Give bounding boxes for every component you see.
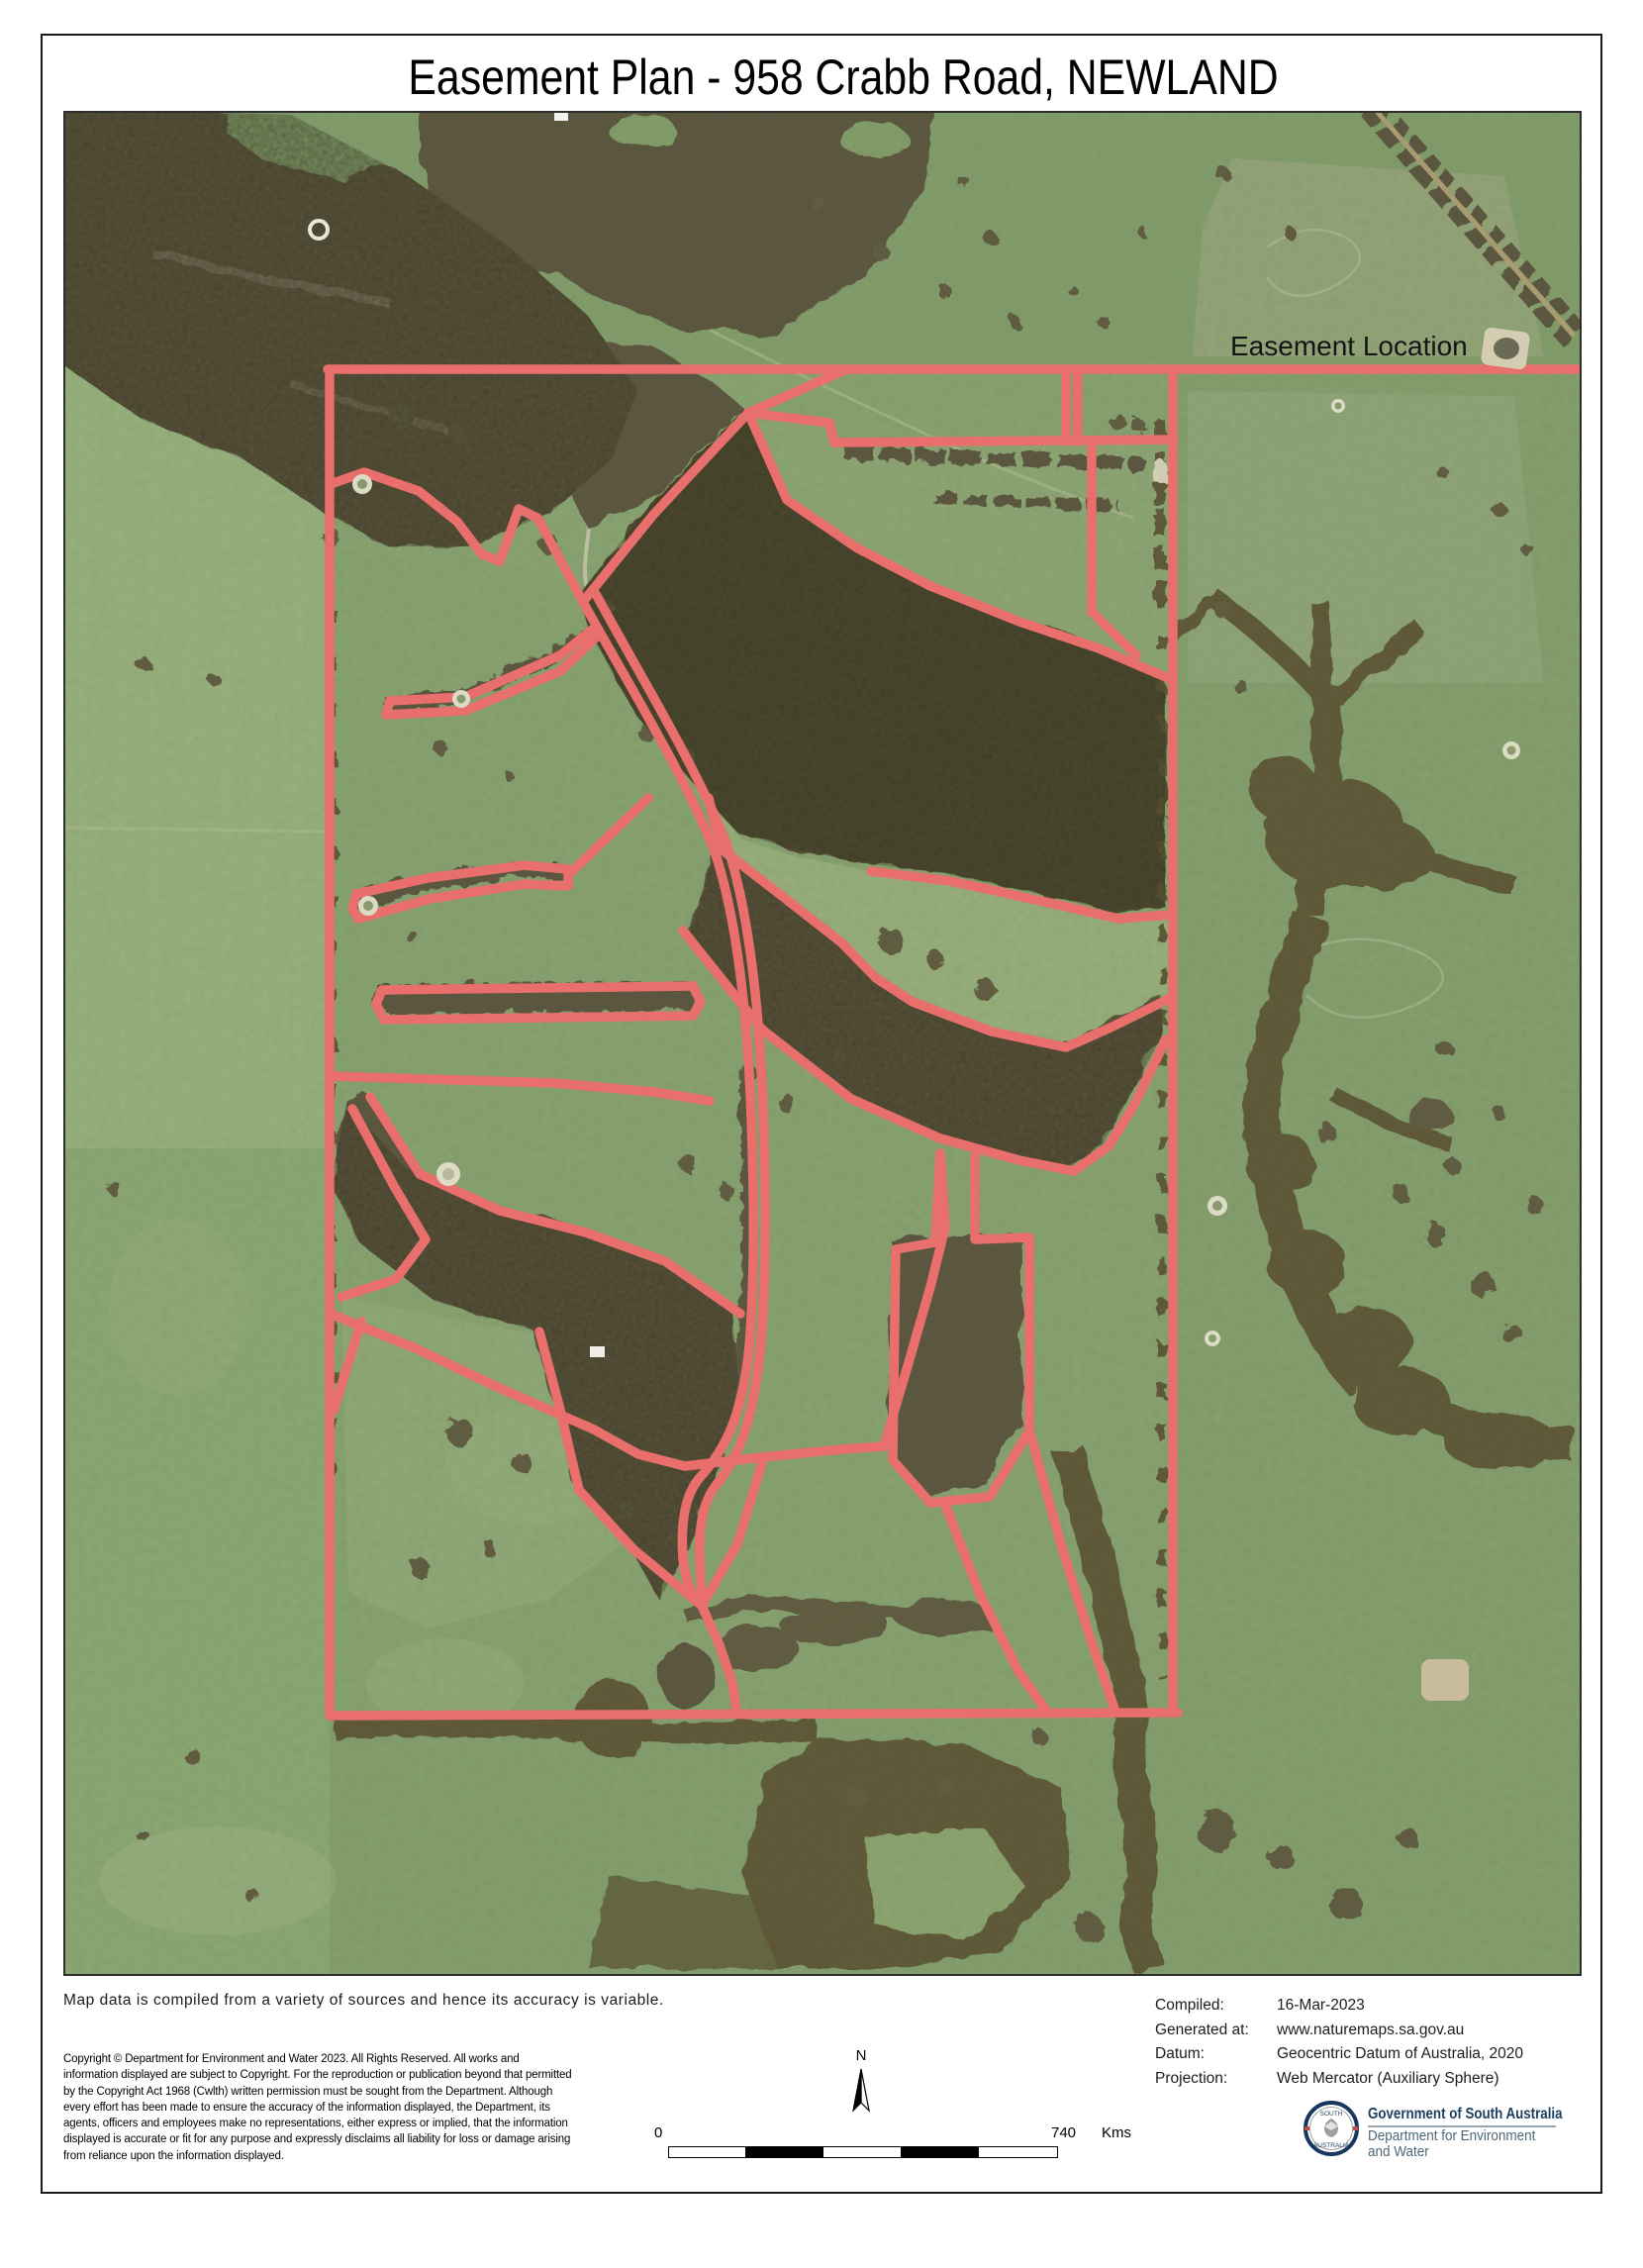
svg-text:AUSTRALIA: AUSTRALIA: [1313, 2142, 1350, 2149]
svg-text:SOUTH: SOUTH: [1320, 2111, 1343, 2118]
svg-text:Easement Location: Easement Location: [1230, 331, 1468, 361]
